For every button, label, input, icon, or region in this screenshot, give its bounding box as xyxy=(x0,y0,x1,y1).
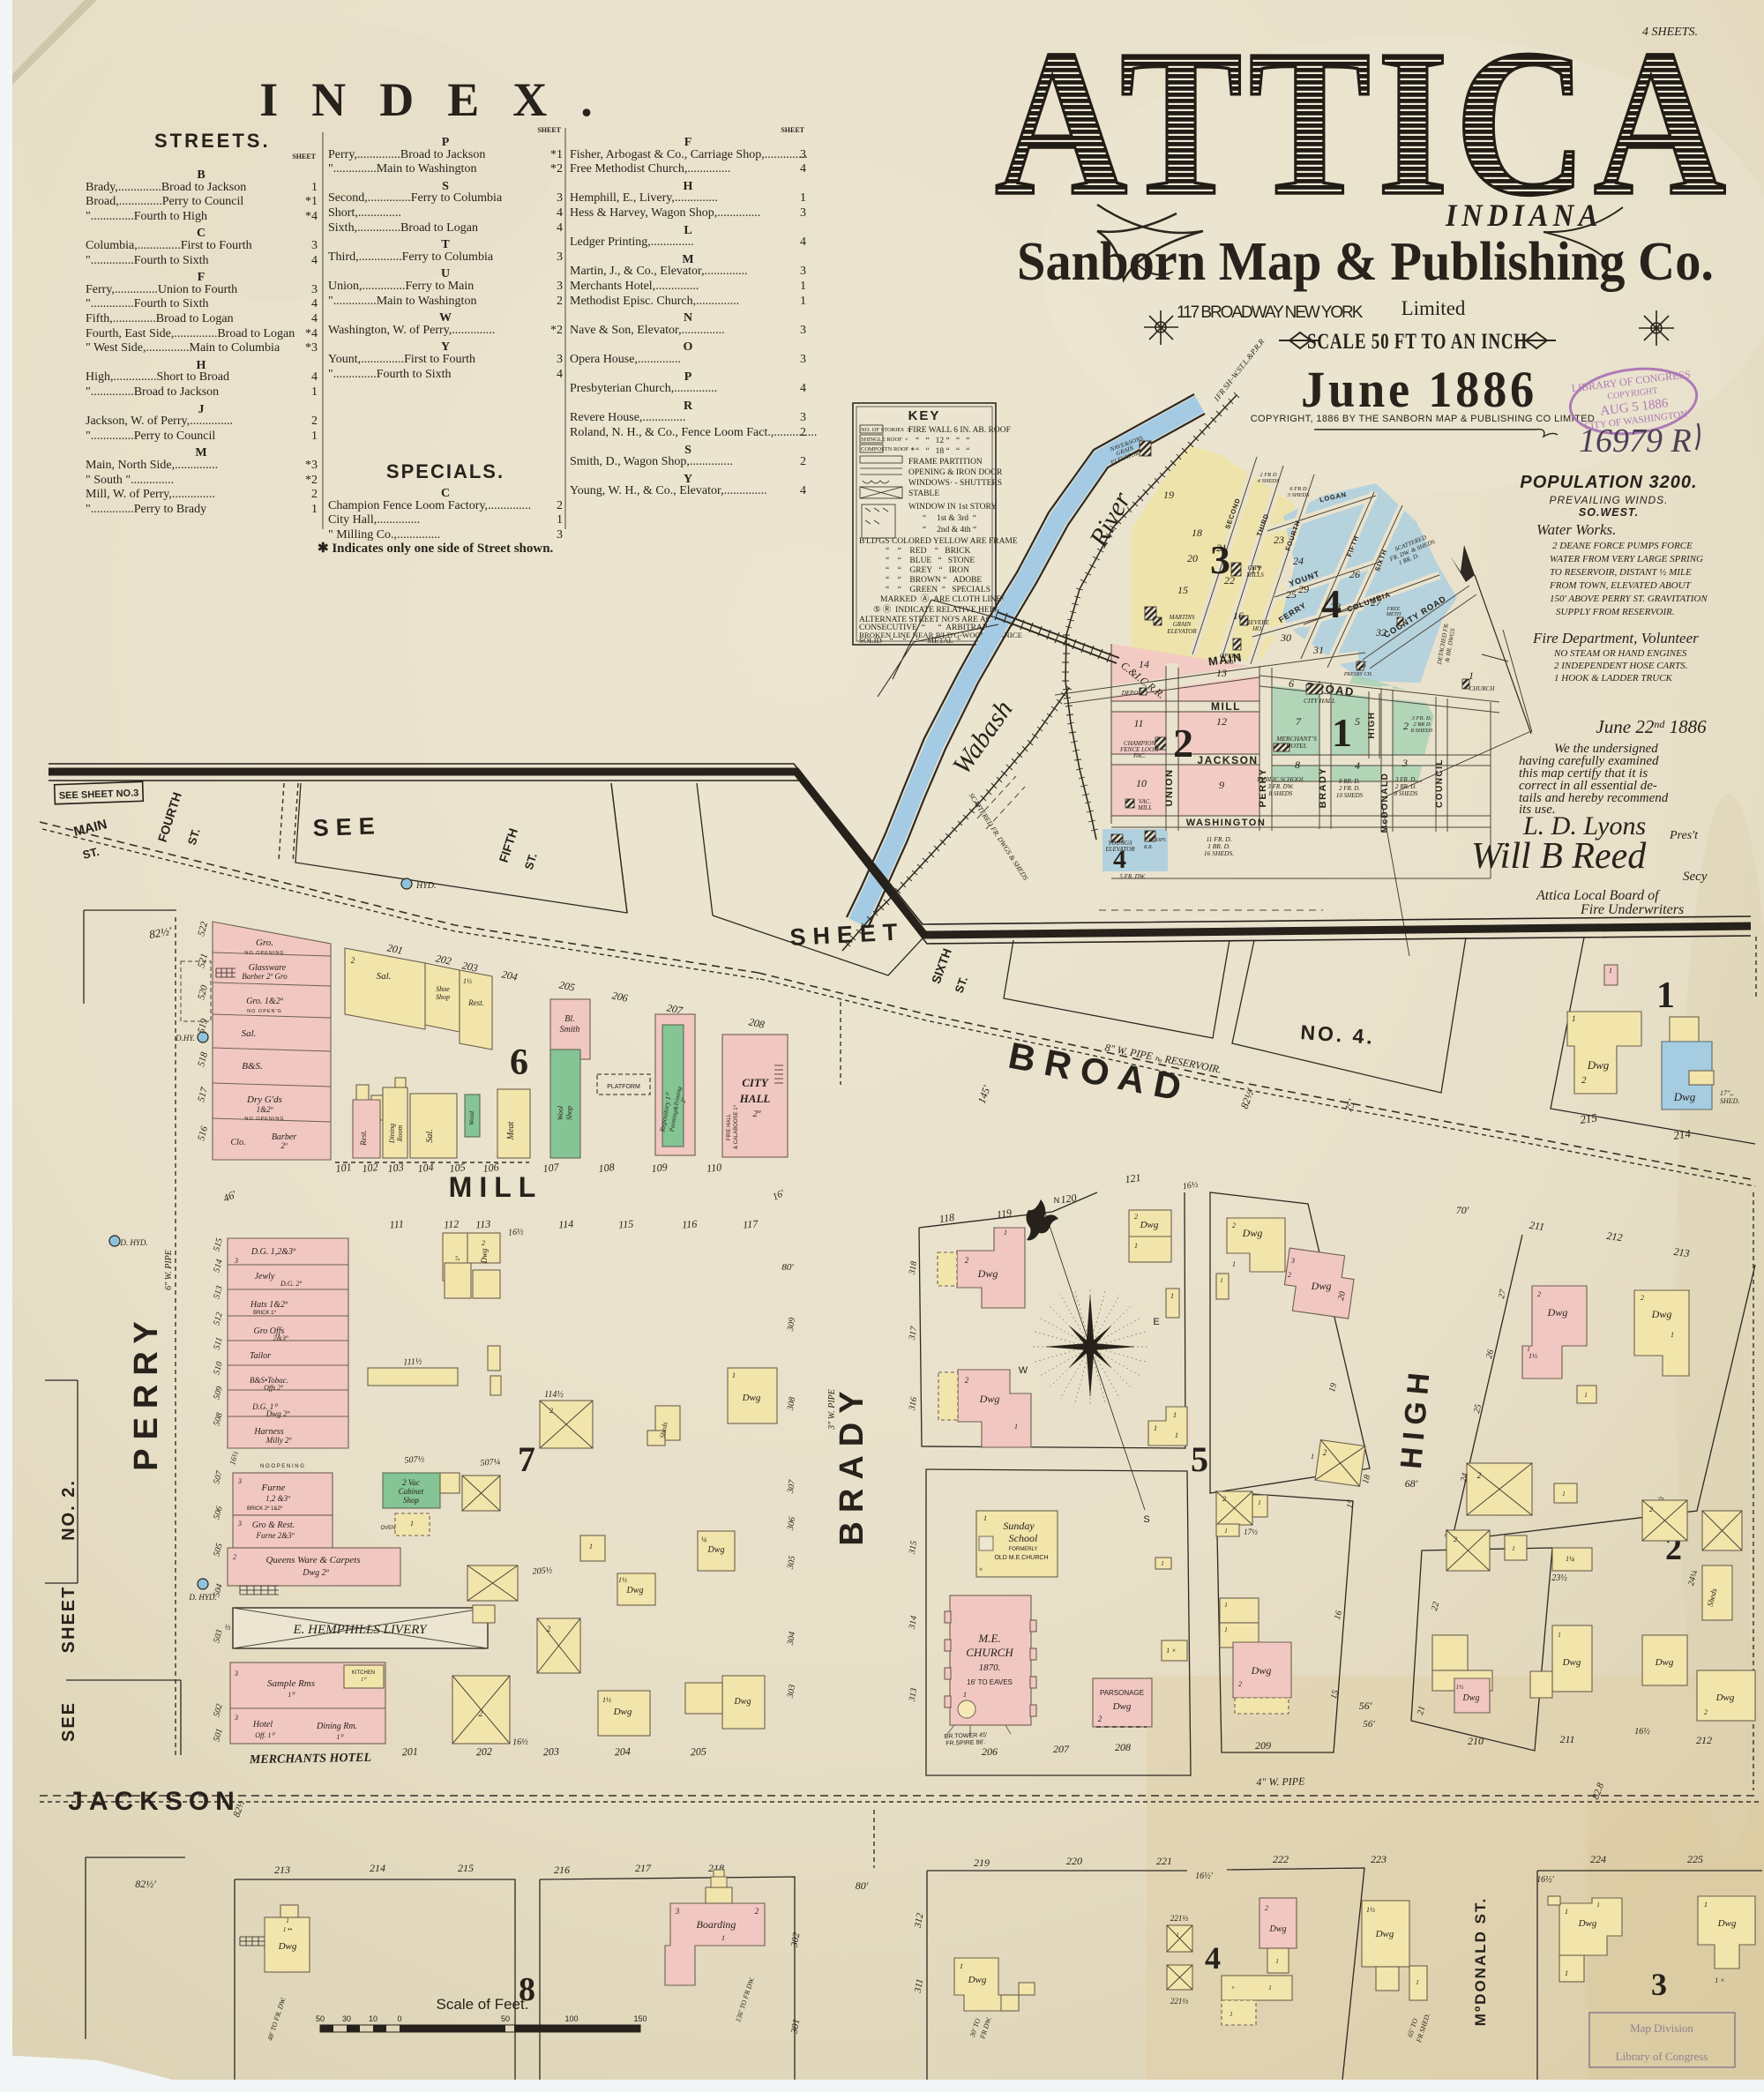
svg-text:HOTEL: HOTEL xyxy=(1285,742,1307,750)
svg-text:214: 214 xyxy=(370,1862,385,1874)
svg-text:Gro.: Gro. xyxy=(256,938,273,948)
svg-text:City Hall,..............: City Hall,.............. xyxy=(328,513,420,527)
svg-text:Water Works.: Water Works. xyxy=(1536,521,1616,538)
svg-text:1: 1 xyxy=(1656,975,1675,1016)
svg-text:OPENING & IRON DOOR: OPENING & IRON DOOR xyxy=(908,468,1003,477)
svg-text:Third,..............Ferry to C: Third,..............Ferry to Columbia xyxy=(328,250,494,264)
svg-text:HALL: HALL xyxy=(739,1092,771,1105)
svg-text:204: 204 xyxy=(615,1745,631,1759)
svg-text:2: 2 xyxy=(1704,1708,1708,1716)
svg-text:O: O xyxy=(684,340,693,354)
svg-text:Dwg: Dwg xyxy=(480,1248,489,1265)
svg-text:8 SHEDS: 8 SHEDS xyxy=(1411,728,1433,734)
svg-text:Mill, W. of Perry,............: Mill, W. of Perry,.............. xyxy=(86,488,215,501)
svg-text:PERRY: PERRY xyxy=(1258,768,1268,808)
svg-text:216: 216 xyxy=(554,1864,570,1876)
svg-text:MERCHANTS HOTEL: MERCHANTS HOTEL xyxy=(249,1752,371,1767)
svg-text:213: 213 xyxy=(1673,1245,1691,1259)
svg-text:3: 3 xyxy=(1401,757,1408,769)
svg-text:2: 2 xyxy=(482,1239,485,1247)
svg-text:1: 1 xyxy=(1704,1901,1708,1909)
svg-text:1,2 &3º: 1,2 &3º xyxy=(265,1494,290,1503)
svg-text:INDIANA: INDIANA xyxy=(1445,198,1603,233)
svg-text:30: 30 xyxy=(342,2014,351,2023)
svg-text:3: 3 xyxy=(557,191,563,205)
svg-text:1: 1 xyxy=(1584,1392,1588,1399)
svg-text:D.HY.: D.HY. xyxy=(175,1034,195,1042)
svg-text:Dwg: Dwg xyxy=(1547,1306,1568,1319)
svg-text:FIRE HALL: FIRE HALL xyxy=(727,1113,732,1140)
svg-text:Offs 2º: Offs 2º xyxy=(264,1384,283,1392)
svg-text:PERRY: PERRY xyxy=(128,1312,165,1471)
svg-text:“ “ GREY “ IRON: “ “ GREY “ IRON xyxy=(886,566,969,575)
svg-text:Fourth, East Side,............: Fourth, East Side,..............Broad to… xyxy=(86,327,295,340)
svg-text:4: 4 xyxy=(557,368,563,381)
svg-text:Dwg 2º: Dwg 2º xyxy=(302,1568,329,1578)
svg-text:3: 3 xyxy=(800,324,806,337)
svg-text:Dwg 2º: Dwg 2º xyxy=(265,1409,290,1418)
svg-text:Dwg: Dwg xyxy=(1462,1693,1480,1703)
svg-text:ATTICA: ATTICA xyxy=(995,7,1732,239)
svg-text:"..............Broad to Jackso: "..............Broad to Jackson xyxy=(86,385,219,399)
svg-text:2: 2 xyxy=(1454,1535,1457,1543)
svg-text:½: ½ xyxy=(225,1623,231,1632)
svg-text:115: 115 xyxy=(618,1217,634,1230)
svg-text:FAC.: FAC. xyxy=(1132,752,1146,759)
svg-text:2 Vac: 2 Vac xyxy=(402,1478,420,1487)
svg-text:Gro. 1&2º: Gro. 1&2º xyxy=(246,997,284,1006)
svg-text:Bl.: Bl. xyxy=(564,1014,574,1024)
svg-text:2: 2 xyxy=(1581,1075,1587,1086)
svg-text:JACKSON: JACKSON xyxy=(68,1787,241,1816)
svg-text:Pres't: Pres't xyxy=(1669,829,1699,842)
svg-text:“ “ 12 “ “ “: “ “ 12 “ “ “ xyxy=(916,437,969,445)
svg-text:D.G. 2º: D.G. 2º xyxy=(280,1280,303,1288)
svg-text:*2: *2 xyxy=(550,324,563,337)
svg-text:6" W. PIPE: 6" W. PIPE xyxy=(164,1250,174,1290)
svg-text:3: 3 xyxy=(557,280,563,293)
svg-text:E: E xyxy=(1153,1317,1159,1327)
svg-text:1½: 1½ xyxy=(1456,1684,1465,1691)
svg-text:2: 2 xyxy=(1265,1904,1268,1912)
svg-text:"..............Fourth to Sixth: "..............Fourth to Sixth xyxy=(86,254,209,267)
svg-text:1½: 1½ xyxy=(1529,1352,1537,1360)
svg-text:2 FR. D.: 2 FR. D. xyxy=(1339,785,1360,792)
svg-text:1½: 1½ xyxy=(1366,1906,1375,1914)
svg-text:Will B Reed: Will B Reed xyxy=(1471,836,1647,877)
svg-text:Shop: Shop xyxy=(436,993,450,1001)
svg-text:C: C xyxy=(197,227,206,240)
svg-text:1: 1 xyxy=(732,1371,736,1379)
svg-text:"..............Fourth to Sixth: "..............Fourth to Sixth xyxy=(328,368,452,381)
svg-text:10: 10 xyxy=(1136,777,1147,789)
svg-text:1: 1 xyxy=(311,430,318,443)
svg-text:108: 108 xyxy=(598,1161,615,1175)
svg-text:3: 3 xyxy=(1290,1257,1295,1265)
svg-text:Dwg: Dwg xyxy=(979,1393,1000,1405)
svg-text:111½: 111½ xyxy=(403,1356,422,1367)
svg-text:2: 2 xyxy=(311,415,318,428)
svg-text:SCALE 50 FT TO AN INCH: SCALE 50 FT TO AN INCH xyxy=(1307,330,1528,354)
svg-text:CITY: CITY xyxy=(742,1076,769,1089)
svg-text:5: 5 xyxy=(1191,1439,1208,1479)
svg-text:Washington, W. of Perry,......: Washington, W. of Perry,.............. xyxy=(328,324,495,337)
svg-text:Barber 2º Gro: Barber 2º Gro xyxy=(242,972,288,981)
svg-text:4: 4 xyxy=(1205,1940,1221,1976)
svg-text:Clo.: Clo. xyxy=(231,1138,246,1147)
svg-text:W: W xyxy=(439,311,452,325)
svg-text:M: M xyxy=(195,446,206,459)
svg-text:Cabinet: Cabinet xyxy=(399,1487,424,1496)
svg-text:1: 1 xyxy=(1671,1331,1674,1339)
svg-text:Fisher, Arbogast & Co., Carria: Fisher, Arbogast & Co., Carriage Shop,..… xyxy=(570,148,808,161)
svg-text:METH: METH xyxy=(1386,612,1401,617)
svg-text:1: 1 xyxy=(311,503,318,516)
svg-text:2: 2 xyxy=(965,1376,969,1385)
svg-text:2: 2 xyxy=(549,1407,553,1415)
svg-text:3 FR. D.: 3 FR. D. xyxy=(1394,776,1416,783)
svg-text:MILLS: MILLS xyxy=(1245,572,1264,579)
svg-text:Fire Department, Volunteer: Fire Department, Volunteer xyxy=(1532,630,1699,646)
svg-text:17'′ₔₒ: 17'′ₔₒ xyxy=(1720,1089,1735,1097)
svg-text:1: 1 xyxy=(1170,1292,1174,1300)
svg-text:2: 2 xyxy=(1222,1495,1226,1503)
svg-text:School: School xyxy=(1009,1532,1038,1544)
svg-text:213: 213 xyxy=(274,1864,290,1876)
svg-text:Short,..............: Short,.............. xyxy=(328,206,401,220)
svg-text:50: 50 xyxy=(501,2014,510,2023)
svg-text:COMPOSTN ROOF ∗: COMPOSTN ROOF ∗ xyxy=(861,446,915,452)
svg-text:SO.WEST.: SO.WEST. xyxy=(1579,506,1639,519)
svg-text:4: 4 xyxy=(311,297,318,310)
svg-text:2: 2 xyxy=(1641,1294,1644,1302)
svg-text:2 DEANE FORCE PUMPS FORCE: 2 DEANE FORCE PUMPS FORCE xyxy=(1552,541,1693,551)
svg-text:"..............Fourth to Sixth: "..............Fourth to Sixth xyxy=(86,297,209,310)
svg-text:OLD M.E.CHURCH: OLD M.E.CHURCH xyxy=(994,1555,1048,1561)
svg-text:1: 1 xyxy=(1512,1545,1515,1552)
svg-text:WATER FROM VERY LARGE SPRING: WATER FROM VERY LARGE SPRING xyxy=(1550,554,1703,564)
svg-text:Dwg: Dwg xyxy=(1587,1058,1610,1072)
svg-text:“ “ RED “ BRICK: “ “ RED “ BRICK xyxy=(886,547,970,556)
svg-text:2º: 2º xyxy=(280,1141,288,1150)
svg-text:TO RESERVOIR, DISTANT ½ MILE: TO RESERVOIR, DISTANT ½ MILE xyxy=(1550,567,1692,578)
svg-text:68': 68' xyxy=(1405,1477,1418,1490)
svg-text:Fifth,..............Broad to L: Fifth,..............Broad to Logan xyxy=(86,312,234,325)
svg-text:1: 1 xyxy=(1332,710,1352,755)
svg-text:KEY: KEY xyxy=(908,408,941,423)
svg-text:2: 2 xyxy=(1134,1213,1138,1221)
svg-text:3: 3 xyxy=(237,1520,242,1528)
svg-text:Fire Underwriters: Fire Underwriters xyxy=(1580,902,1684,917)
svg-text:Jackson, W. of Perry,.........: Jackson, W. of Perry,.............. xyxy=(86,415,233,428)
svg-text:1: 1 xyxy=(1161,1560,1164,1567)
svg-text:Hats 1&2º: Hats 1&2º xyxy=(250,1300,288,1310)
svg-text:9: 9 xyxy=(1219,779,1224,791)
svg-text:15: 15 xyxy=(1177,584,1188,596)
svg-text:1: 1 xyxy=(1562,1491,1566,1498)
svg-text:1: 1 xyxy=(1224,1626,1228,1633)
svg-text:NO OPEN'G: NO OPEN'G xyxy=(247,1009,282,1014)
svg-text:KITCHEN: KITCHEN xyxy=(352,1670,375,1676)
svg-text:16 SHEDS.: 16 SHEDS. xyxy=(1204,849,1234,857)
svg-text:5: 5 xyxy=(1355,715,1360,728)
svg-text:1: 1 xyxy=(960,1962,963,1970)
svg-text:Revere House,..............: Revere House,.............. xyxy=(570,411,685,424)
svg-text:Dwg: Dwg xyxy=(1578,1918,1597,1929)
svg-text:2: 2 xyxy=(547,1625,551,1633)
svg-text:4: 4 xyxy=(311,370,318,384)
svg-text:Dwg: Dwg xyxy=(977,1267,998,1280)
svg-text:119: 119 xyxy=(996,1207,1013,1221)
svg-text:STREETS.: STREETS. xyxy=(154,130,271,152)
svg-text:4: 4 xyxy=(800,484,806,497)
svg-text:Hess & Harvey, Wagon Shop,....: Hess & Harvey, Wagon Shop,.............. xyxy=(570,206,760,220)
svg-text:116: 116 xyxy=(682,1217,698,1230)
svg-text:“ 1st & 3rd “: “ 1st & 3rd “ xyxy=(923,514,976,523)
svg-text:209: 209 xyxy=(1255,1739,1271,1752)
svg-text:117: 117 xyxy=(743,1217,759,1230)
svg-text:Wood: Wood xyxy=(468,1111,475,1125)
svg-text:507½: 507½ xyxy=(404,1454,425,1466)
svg-text:4 SHEDS: 4 SHEDS xyxy=(1258,478,1280,484)
svg-text:Dwg: Dwg xyxy=(613,1707,632,1717)
svg-text:29: 29 xyxy=(1298,583,1309,595)
svg-text:"..............Main to Washing: "..............Main to Washington xyxy=(328,162,476,176)
svg-text:219: 219 xyxy=(974,1857,990,1869)
svg-text:8 SHEDS: 8 SHEDS xyxy=(1269,790,1293,797)
svg-text:Dwg: Dwg xyxy=(1673,1090,1696,1103)
svg-text:Dwg: Dwg xyxy=(626,1586,644,1595)
svg-text:STABLE: STABLE xyxy=(908,489,939,498)
svg-text:215: 215 xyxy=(1579,1110,1598,1126)
svg-text:S: S xyxy=(1143,1514,1149,1525)
svg-text:Off. 1⁰: Off. 1⁰ xyxy=(255,1731,275,1739)
svg-text:211: 211 xyxy=(1529,1219,1545,1233)
svg-text:Merchants Hotel,..............: Merchants Hotel,.............. xyxy=(570,280,699,293)
svg-text:1: 1 xyxy=(800,280,806,293)
svg-text:56': 56' xyxy=(1363,1719,1375,1730)
svg-text:NO. 2.: NO. 2. xyxy=(59,1479,78,1541)
svg-text:JACKSON: JACKSON xyxy=(1197,754,1258,766)
svg-text:111: 111 xyxy=(389,1217,404,1230)
svg-text:PLATFORM: PLATFORM xyxy=(607,1084,640,1090)
svg-text:✱ Indicates only one side of S: ✱ Indicates only one side of Street show… xyxy=(318,542,554,556)
svg-text:Queens Ware & Carpets: Queens Ware & Carpets xyxy=(265,1555,360,1565)
svg-text:10: 10 xyxy=(369,2014,377,2023)
svg-text:14: 14 xyxy=(1139,658,1149,670)
svg-text:1: 1 xyxy=(1275,1958,1279,1965)
svg-text:PARSONAGE: PARSONAGE xyxy=(1100,1689,1144,1697)
svg-text:Dwg: Dwg xyxy=(1717,1918,1737,1929)
svg-text:2: 2 xyxy=(351,956,355,965)
svg-text:Methodist Episc. Church,......: Methodist Episc. Church,.............. xyxy=(570,295,739,308)
svg-text:1: 1 xyxy=(1268,1984,1272,1991)
svg-text:4: 4 xyxy=(800,162,806,176)
svg-text:N O O P E N I N G: N O O P E N I N G xyxy=(260,1464,304,1469)
svg-text:Brady,..............Broad to J: Brady,..............Broad to Jackson xyxy=(86,181,246,194)
svg-text:1: 1 xyxy=(1565,1969,1568,1977)
svg-text:3: 3 xyxy=(800,265,806,278)
svg-text:27: 27 xyxy=(1371,596,1382,609)
svg-text:1½: 1½ xyxy=(602,1696,611,1704)
svg-text:1: 1 xyxy=(1224,1602,1228,1609)
svg-text:121: 121 xyxy=(1125,1171,1142,1185)
svg-text:16½: 16½ xyxy=(508,1227,525,1237)
svg-text:Dwg: Dwg xyxy=(1112,1701,1132,1712)
svg-text:1&2º: 1&2º xyxy=(257,1105,273,1114)
svg-text:Columbia,..............First t: Columbia,..............First to Fourth xyxy=(86,239,252,252)
svg-text:PREVAILING WINDS.: PREVAILING WINDS. xyxy=(1549,494,1668,506)
svg-text:203: 203 xyxy=(543,1745,559,1759)
svg-text:Sample Rms: Sample Rms xyxy=(267,1678,315,1689)
svg-text:*3: *3 xyxy=(305,341,318,355)
svg-text:212: 212 xyxy=(1696,1734,1712,1746)
svg-text:POPULATION 3200.: POPULATION 3200. xyxy=(1520,473,1697,492)
svg-text:Shoe: Shoe xyxy=(436,985,450,993)
svg-text:107: 107 xyxy=(542,1161,560,1175)
svg-text:19: 19 xyxy=(1163,489,1174,501)
svg-text:Scale of Feet.: Scale of Feet. xyxy=(437,1996,529,2013)
svg-text:SHEET: SHEET xyxy=(292,153,316,161)
svg-text:100: 100 xyxy=(564,2014,578,2023)
svg-text:1: 1 xyxy=(557,513,563,527)
svg-text:1870.: 1870. xyxy=(979,1662,1001,1673)
svg-text:16′ TO EAVES: 16′ TO EAVES xyxy=(967,1678,1013,1686)
svg-text:" West Side,..............M: " West Side,..............Main to Columb… xyxy=(86,341,280,355)
svg-text:24: 24 xyxy=(1293,555,1304,567)
svg-text:1: 1 xyxy=(286,1917,289,1924)
svg-text:Meat: Meat xyxy=(506,1122,516,1141)
svg-text:1 ••: 1 •• xyxy=(283,1926,293,1933)
svg-text:150' ABOVE PERRY ST. GRAVITAT: 150' ABOVE PERRY ST. GRAVITATION xyxy=(1550,594,1708,604)
svg-text:WINDOW IN 1st STORY: WINDOW IN 1st STORY xyxy=(908,503,997,512)
svg-text:Room: Room xyxy=(396,1124,404,1142)
svg-text:202: 202 xyxy=(476,1745,492,1759)
svg-text:"..............Fourth to High: "..............Fourth to High xyxy=(86,210,207,223)
svg-text:CHURCH: CHURCH xyxy=(1469,685,1496,692)
svg-text:Limited: Limited xyxy=(1401,297,1466,319)
svg-text:*2: *2 xyxy=(305,474,318,487)
svg-text:3: 3 xyxy=(557,353,563,366)
svg-text:Boarding: Boarding xyxy=(697,1918,736,1931)
svg-text:82½′: 82½′ xyxy=(135,1878,156,1890)
svg-text:Dwg: Dwg xyxy=(742,1393,761,1403)
svg-text:2 FR D: 2 FR D xyxy=(1259,472,1276,478)
svg-text:7: 7 xyxy=(1296,715,1302,728)
svg-text:18: 18 xyxy=(1192,527,1202,539)
svg-text:1: 1 xyxy=(1173,1411,1177,1419)
svg-text:1: 1 xyxy=(1176,1931,1179,1939)
svg-text:W: W xyxy=(1019,1365,1028,1376)
svg-text:1: 1 xyxy=(800,295,806,308)
svg-text:3: 3 xyxy=(557,250,563,264)
svg-text:PUBLIC SCHOOL: PUBLIC SCHOOL xyxy=(1256,776,1304,783)
svg-text:2: 2 xyxy=(1098,1715,1102,1723)
svg-text:1: 1 xyxy=(963,1691,967,1699)
svg-text:Dwg: Dwg xyxy=(1655,1657,1674,1668)
svg-text:150: 150 xyxy=(633,2014,647,2023)
svg-text:1: 1 xyxy=(1311,1453,1314,1461)
svg-text:206: 206 xyxy=(982,1745,998,1758)
svg-text:HO.: HO. xyxy=(1252,625,1263,632)
svg-text:Yount,..............First to F: Yount,..............First to Fourth xyxy=(328,353,475,366)
svg-text:Dwg: Dwg xyxy=(1311,1280,1332,1292)
svg-text:1½: 1½ xyxy=(618,1576,627,1584)
svg-text:220: 220 xyxy=(1066,1855,1082,1867)
svg-text:1: 1 xyxy=(589,1543,593,1550)
svg-text:221½: 221½ xyxy=(1170,1914,1189,1923)
svg-text:*1: *1 xyxy=(305,195,318,208)
svg-text:Martin, J., & Co., Elevator,..: Martin, J., & Co., Elevator,............… xyxy=(570,265,748,278)
svg-text:*2: *2 xyxy=(550,162,563,176)
svg-text:SHEET: SHEET xyxy=(59,1586,78,1654)
svg-text:Dwg: Dwg xyxy=(1715,1692,1735,1703)
svg-text:2: 2 xyxy=(311,488,318,501)
svg-text:1: 1 xyxy=(1175,1431,1178,1439)
svg-text:217: 217 xyxy=(635,1862,652,1874)
svg-text:Ferry,..............Union to F: Ferry,..............Union to Fourth xyxy=(86,283,237,296)
svg-text:221: 221 xyxy=(1156,1855,1172,1867)
svg-text:114: 114 xyxy=(558,1217,574,1230)
svg-text:Dwg: Dwg xyxy=(1269,1924,1287,1934)
svg-text:DEPOT: DEPOT xyxy=(1121,690,1143,697)
svg-text:OVEN: OVEN xyxy=(380,1526,395,1531)
svg-text:221½: 221½ xyxy=(1170,1997,1189,2006)
svg-text:8 BR. D.: 8 BR. D. xyxy=(1339,778,1360,785)
svg-text:3" W. PIPE: 3" W. PIPE xyxy=(827,1389,837,1431)
svg-text:BRADY: BRADY xyxy=(1318,767,1328,809)
svg-text:2: 2 xyxy=(1323,1448,1327,1457)
svg-text:3: 3 xyxy=(311,239,318,252)
svg-text:Dining: Dining xyxy=(388,1124,396,1144)
svg-text:3 SHEDS: 3 SHEDS xyxy=(1287,492,1310,498)
svg-text:E. HEMPHILLS LIVERY: E. HEMPHILLS LIVERY xyxy=(293,1623,429,1637)
svg-text:Nave & Son, Elevator,.........: Nave & Son, Elevator,.............. xyxy=(570,324,725,337)
svg-text:16½′: 16½′ xyxy=(1195,1872,1214,1881)
svg-text:Roland, N. H., & Co., Fence Lo: Roland, N. H., & Co., Fence Loom Fact.,.… xyxy=(570,426,817,439)
svg-text:2: 2 xyxy=(965,1256,969,1265)
svg-text:FROM TOWN, ELEVATED ABOUT: FROM TOWN, ELEVATED ABOUT xyxy=(1549,580,1692,591)
svg-text:P: P xyxy=(442,136,450,149)
svg-text:3: 3 xyxy=(800,353,806,366)
svg-text:1: 1 xyxy=(1134,1242,1138,1250)
svg-text:Dwg: Dwg xyxy=(1251,1664,1272,1677)
svg-text:205: 205 xyxy=(691,1745,706,1759)
svg-text:5 FR. DW.: 5 FR. DW. xyxy=(1119,873,1146,880)
svg-text:211: 211 xyxy=(1559,1733,1574,1745)
svg-text:3: 3 xyxy=(800,148,806,161)
svg-text:3: 3 xyxy=(234,1670,238,1677)
svg-text:1½: 1½ xyxy=(463,977,472,985)
svg-text:112: 112 xyxy=(444,1217,460,1230)
svg-text:SHEET: SHEET xyxy=(781,126,804,134)
svg-text:MILL: MILL xyxy=(1211,700,1241,713)
svg-text:MºDONALD ST.: MºDONALD ST. xyxy=(1472,1897,1489,2026)
svg-text:Dwg: Dwg xyxy=(734,1697,751,1707)
svg-text:U: U xyxy=(441,267,450,280)
svg-text:Sunday: Sunday xyxy=(1003,1520,1035,1532)
svg-text:Rest.: Rest. xyxy=(467,998,484,1007)
svg-text:2: 2 xyxy=(1537,1290,1541,1298)
svg-text:Dwg: Dwg xyxy=(707,1545,725,1555)
svg-text:"..............Main to Washing: "..............Main to Washington xyxy=(328,295,476,308)
svg-text:Dwg: Dwg xyxy=(1140,1220,1159,1230)
svg-text:" Milling Co.,..............: " Milling Co.,.............. xyxy=(328,528,440,542)
svg-text:2: 2 xyxy=(1649,1505,1653,1513)
svg-text:Sixth,..............Broad to L: Sixth,..............Broad to Logan xyxy=(328,221,478,235)
svg-text:30: 30 xyxy=(1280,631,1291,644)
svg-text:1 HOOK & LADDER TRUCK: 1 HOOK & LADDER TRUCK xyxy=(1554,673,1673,684)
